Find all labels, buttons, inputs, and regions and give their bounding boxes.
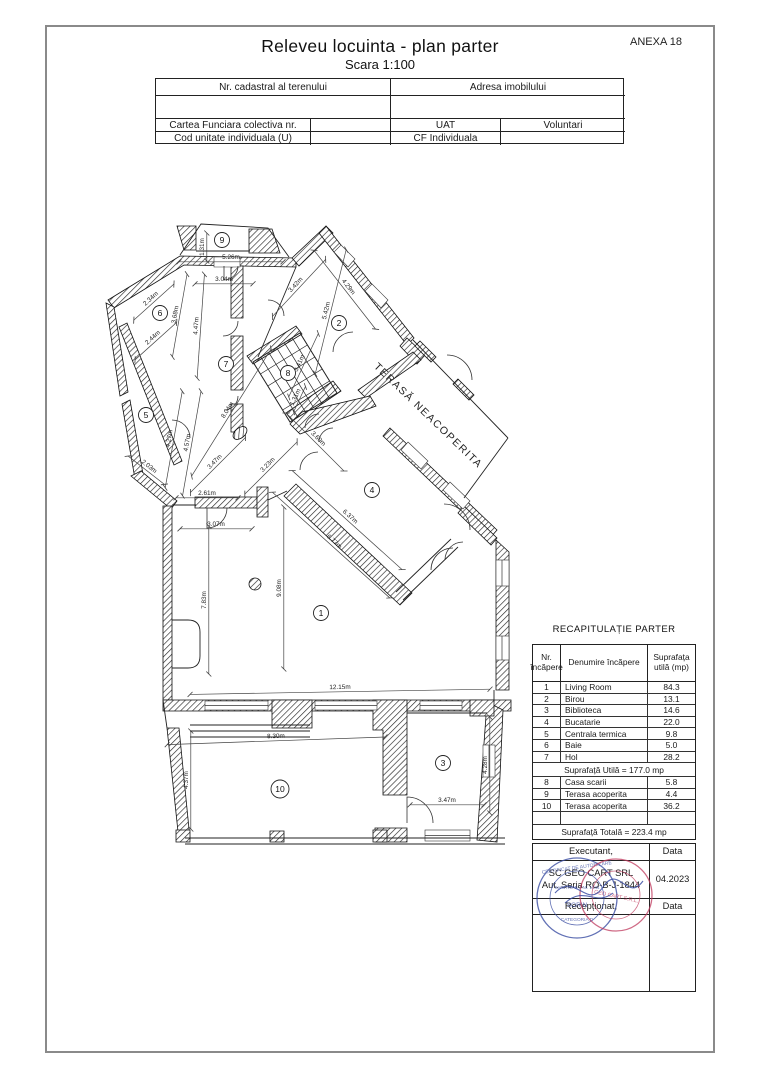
recap-row: 3Biblioteca14.6: [533, 705, 695, 717]
svg-text:12.15m: 12.15m: [329, 684, 350, 691]
svg-text:6: 6: [158, 308, 163, 318]
svg-text:4.37m: 4.37m: [183, 771, 190, 789]
data-label: Data: [650, 844, 695, 861]
executant-label: Executant,: [533, 844, 650, 861]
recap-table: Nr. încăpere Denumire încăpere Suprafața…: [532, 644, 696, 840]
recap-empty-row: [533, 812, 695, 825]
executant-auth: Aut. Seria RO-B-J-1844: [542, 880, 640, 892]
room-number: 8: [281, 366, 296, 381]
dim: 8.30m: [164, 729, 387, 747]
room-number: 7: [219, 357, 234, 372]
recap-row: 10Terasa acoperita36.2: [533, 800, 695, 812]
document-page: ANEXA 18 Releveu locuinta - plan parter …: [0, 0, 763, 1080]
recap-row: 4Bucatarie22.0: [533, 717, 695, 729]
dim: 4.47m: [189, 271, 207, 380]
dim: 5.42m: [307, 245, 349, 377]
signoff-table: Executant, Data SC GEO CART SRL Aut. Ser…: [532, 843, 696, 992]
svg-text:5.26m: 5.26m: [222, 254, 240, 261]
dim: 3.23m: [238, 435, 301, 498]
room-number: 1: [314, 606, 329, 621]
svg-text:9.08m: 9.08m: [276, 579, 283, 597]
dim: 9.08m: [276, 505, 286, 672]
recap-row: 9Terasa acoperita4.4: [533, 789, 695, 801]
recap-row: 1Living Room84.3: [533, 682, 695, 694]
svg-text:5.42m: 5.42m: [321, 301, 332, 320]
svg-text:3.04m: 3.04m: [215, 276, 233, 283]
data-empty-cell: [650, 915, 695, 991]
recap-header-nr: Nr. încăpere: [533, 645, 561, 681]
room-number: 2: [332, 316, 347, 331]
svg-text:TERASĂ NEACOPERITA: TERASĂ NEACOPERITA: [371, 360, 485, 471]
dim: 4.57m: [174, 387, 203, 498]
recap-title: RECAPITULAȚIE PARTER: [532, 624, 696, 635]
svg-text:3: 3: [441, 758, 446, 768]
room-number: 6: [153, 306, 168, 321]
room-number: 9: [215, 233, 230, 248]
dim: 7.83m: [201, 524, 211, 677]
dim: 3.68m: [164, 270, 190, 359]
room-number: 5: [139, 408, 154, 423]
recap-header-area: Suprafața utilă (mp): [648, 645, 695, 681]
svg-text:2.61m: 2.61m: [198, 490, 216, 497]
room-number: 3: [436, 756, 451, 771]
recap-row: 7Hol28.2: [533, 752, 695, 764]
dim: 12.15m: [187, 681, 492, 697]
executant-name-cell: SC GEO CART SRL Aut. Seria RO-B-J-1844: [533, 861, 650, 899]
recap-row: 8Casa scarii5.8: [533, 777, 695, 789]
data-label-2: Data: [650, 899, 695, 915]
receptionat-empty-cell: [533, 915, 650, 991]
recap-row: 2Birou13.1: [533, 694, 695, 706]
executant-name: SC GEO CART SRL: [549, 868, 633, 880]
svg-text:5: 5: [144, 410, 149, 420]
svg-text:7.83m: 7.83m: [201, 591, 208, 609]
svg-text:9: 9: [220, 235, 225, 245]
svg-text:7: 7: [224, 359, 229, 369]
dim: 3.47m: [183, 430, 249, 496]
dim: 4.27m: [157, 387, 185, 490]
recap-subtotal: Suprafață Utilă = 177.0 mp: [533, 763, 695, 777]
recap-total: Suprafață Totală = 223.4 mp: [533, 825, 695, 839]
svg-text:2: 2: [337, 318, 342, 328]
terrace-label: TERASĂ NEACOPERITA: [371, 360, 485, 471]
date-value: 04.2023: [650, 861, 695, 899]
dim: 3.47m: [408, 797, 487, 807]
dim: 3.07m: [178, 521, 255, 531]
dim: 3.04m: [193, 276, 256, 286]
receptionat-label: Recepționat,: [533, 899, 650, 915]
svg-text:8.30m: 8.30m: [267, 733, 285, 741]
svg-text:3.47m: 3.47m: [438, 797, 456, 804]
recap-header-name: Denumire încăpere: [561, 645, 648, 681]
recap-row: 5Centrala termica9.8: [533, 728, 695, 740]
svg-text:4.47m: 4.47m: [192, 317, 200, 335]
window-mid-lines: [205, 560, 502, 836]
svg-text:4: 4: [370, 485, 375, 495]
room-number: 4: [365, 483, 380, 498]
svg-text:10: 10: [275, 784, 285, 794]
svg-text:8: 8: [286, 368, 291, 378]
room-number: 10: [271, 780, 289, 798]
walls: [106, 226, 511, 842]
svg-text:1: 1: [319, 608, 324, 618]
svg-text:4.28m: 4.28m: [482, 756, 489, 774]
recap-header-row: Nr. încăpere Denumire încăpere Suprafața…: [533, 645, 695, 682]
svg-text:1.31m: 1.31m: [199, 238, 206, 256]
recap-row: 6Baie5.0: [533, 740, 695, 752]
recap-body: 1Living Room84.32Birou13.13Biblioteca14.…: [533, 682, 695, 839]
